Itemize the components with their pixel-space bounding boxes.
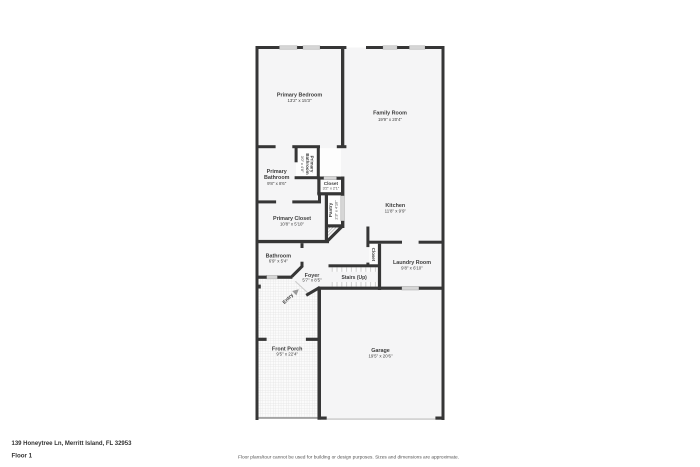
svg-text:2'3" x 4'10": 2'3" x 4'10" <box>333 200 338 220</box>
svg-text:Family Room: Family Room <box>373 111 407 117</box>
svg-text:Floor plans/tour cannot be use: Floor plans/tour cannot be used for buil… <box>238 454 459 460</box>
svg-text:13'2" x 15'3": 13'2" x 15'3" <box>287 98 312 103</box>
svg-text:Stairs (Up): Stairs (Up) <box>342 275 368 281</box>
svg-text:Pantry: Pantry <box>328 202 333 217</box>
svg-text:3'0" x 4'8": 3'0" x 4'8" <box>300 156 304 173</box>
svg-text:9'8" x 8'6": 9'8" x 8'6" <box>267 181 287 186</box>
svg-text:9'5" x 22'4": 9'5" x 22'4" <box>276 352 298 357</box>
svg-text:Closet: Closet <box>324 181 339 186</box>
svg-text:9'8" x 6'10": 9'8" x 6'10" <box>401 265 423 270</box>
svg-text:19'5" x 20'6": 19'5" x 20'6" <box>368 353 393 358</box>
svg-text:Closet: Closet <box>371 248 376 262</box>
svg-text:10'8" x 5'10": 10'8" x 5'10" <box>280 221 305 226</box>
svg-text:3'2" x 2'1": 3'2" x 2'1" <box>323 187 340 191</box>
svg-text:5'7" x 8'5": 5'7" x 8'5" <box>302 278 322 283</box>
svg-text:139 Honeytree Ln, Merritt Isla: 139 Honeytree Ln, Merritt Island, FL 329… <box>12 441 133 447</box>
svg-text:6'9" x 5'4": 6'9" x 5'4" <box>269 259 289 264</box>
svg-text:Floor 1: Floor 1 <box>12 453 33 460</box>
svg-text:Bathroom: Bathroom <box>305 153 310 174</box>
svg-text:11'8" x 9'9": 11'8" x 9'9" <box>385 208 407 213</box>
svg-text:19'9" x 20'4": 19'9" x 20'4" <box>378 117 403 122</box>
